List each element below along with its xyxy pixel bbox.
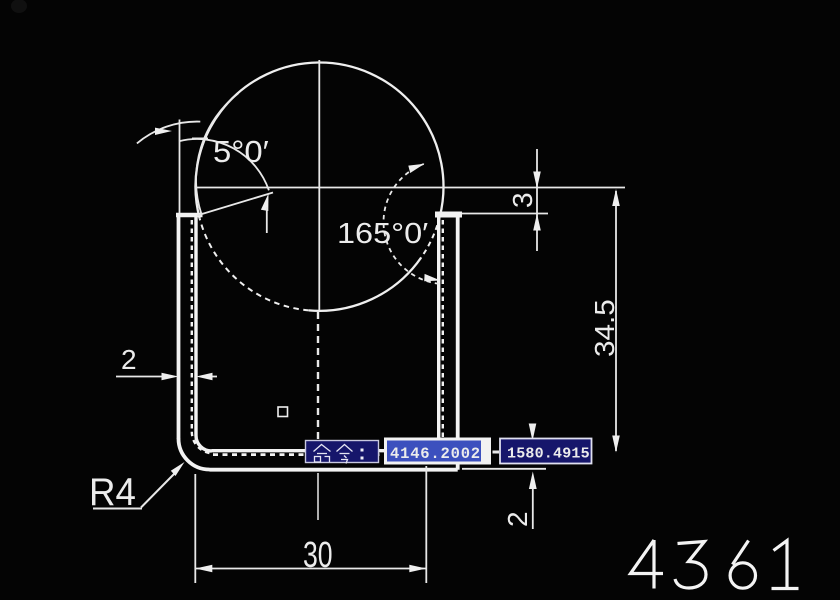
svg-text:4146.2002: 4146.2002	[390, 445, 481, 463]
svg-text:2: 2	[502, 511, 533, 527]
svg-text:3: 3	[507, 192, 538, 208]
svg-text:2: 2	[121, 344, 137, 375]
svg-text:165°0′: 165°0′	[337, 217, 429, 250]
svg-text:1580.4915: 1580.4915	[507, 446, 590, 463]
svg-text:34.5: 34.5	[590, 299, 621, 357]
svg-text:5°0′: 5°0′	[213, 134, 269, 169]
svg-text:30: 30	[303, 534, 333, 575]
